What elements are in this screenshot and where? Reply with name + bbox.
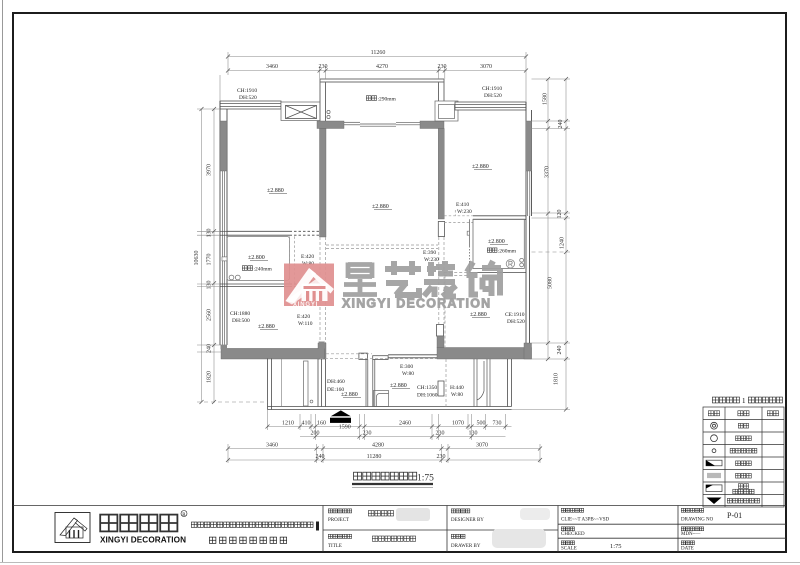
svg-text:DRAWER BY: DRAWER BY [451,544,481,549]
svg-text:W:80: W:80 [402,371,414,377]
svg-text::240mm: :240mm [254,267,273,273]
svg-text:1580: 1580 [543,93,549,105]
svg-text:±2.880: ±2.880 [390,383,407,389]
svg-text:730: 730 [493,421,502,427]
svg-text:W:80: W:80 [451,392,463,398]
svg-text:120: 120 [557,210,563,219]
svg-text:TITLE: TITLE [328,544,342,549]
svg-text:3370: 3370 [545,166,551,178]
svg-text:230: 230 [437,454,446,460]
svg-text:DESIGNER BY: DESIGNER BY [451,518,484,523]
svg-text:2460: 2460 [399,421,411,427]
svg-text:PROJECT: PROJECT [328,518,349,523]
svg-text:E:420: E:420 [297,314,310,320]
svg-text:11260: 11260 [371,50,386,56]
svg-text:DH:520: DH:520 [239,95,257,101]
svg-text:CHECKED: CHECKED [561,532,585,537]
svg-text:1590: 1590 [339,425,351,431]
svg-text:CH:1910: CH:1910 [237,88,257,94]
svg-text:10630: 10630 [194,251,200,266]
svg-text:W:110: W:110 [298,321,313,327]
svg-text:E:390: E:390 [423,250,436,256]
svg-text:230: 230 [363,431,372,437]
svg-text:410: 410 [302,421,311,427]
svg-text:1: 1 [742,397,746,405]
svg-text:1820: 1820 [207,371,213,383]
svg-text:3070: 3070 [476,443,488,449]
svg-text:1810: 1810 [554,373,560,385]
svg-text:1:75: 1:75 [417,474,434,484]
svg-text:1070: 1070 [452,421,464,427]
svg-text:230: 230 [319,64,328,70]
svg-text:±2.880: ±2.880 [267,188,284,194]
svg-text:240: 240 [207,344,213,353]
svg-text:500: 500 [477,421,486,427]
svg-text:±2.800: ±2.800 [488,239,505,245]
svg-text:CLIE~~T A3PB~~VSD: CLIE~~T A3PB~~VSD [561,518,609,523]
svg-text:230: 230 [436,431,445,437]
svg-text:E:420: E:420 [301,254,314,260]
svg-text:3460: 3460 [266,443,278,449]
svg-text:160: 160 [317,421,326,427]
svg-text:H:440: H:440 [450,385,464,391]
svg-text:DATE: DATE [681,547,694,552]
svg-text:DH:1060: DH:1060 [417,393,438,399]
svg-text:3460: 3460 [266,64,278,70]
svg-text:CH:1910: CH:1910 [482,86,502,92]
svg-text:CE:1910: CE:1910 [505,312,525,318]
svg-text:1:75: 1:75 [610,543,622,550]
svg-text:DRAWING NO: DRAWING NO [681,518,714,523]
svg-text:4280: 4280 [372,443,384,449]
svg-text:3970: 3970 [207,164,213,176]
svg-text:DE:160: DE:160 [327,387,344,393]
svg-text:240: 240 [316,454,325,460]
svg-text:±2.800: ±2.800 [248,255,265,261]
svg-text:200: 200 [311,431,320,437]
svg-text:SCALE: SCALE [561,547,577,552]
svg-text:±2.880: ±2.880 [258,324,275,330]
svg-text:230: 230 [438,64,447,70]
svg-text:4270: 4270 [376,64,388,70]
svg-text:CH:1350: CH:1350 [417,385,437,391]
svg-text:130: 130 [207,281,213,290]
svg-text:1240: 1240 [560,237,566,249]
svg-text:XINGYI DECORATION: XINGYI DECORATION [100,536,186,545]
svg-text:DH:500: DH:500 [232,318,250,324]
svg-text:CH:1880: CH:1880 [230,311,250,317]
svg-text:XINGYI: XINGYI [293,302,318,308]
svg-text:1210: 1210 [282,421,294,427]
svg-text:1770: 1770 [207,254,213,266]
svg-text:130: 130 [469,431,478,437]
svg-text:XINGYI DECORATION: XINGYI DECORATION [342,297,491,311]
svg-text:±2.880: ±2.880 [472,164,489,170]
svg-text:±2.880: ±2.880 [372,204,389,210]
svg-text:±2.880: ±2.880 [470,312,487,318]
svg-text:W:230: W:230 [457,209,472,215]
svg-text:130: 130 [207,229,213,238]
svg-text:2560: 2560 [207,309,213,321]
svg-text:240: 240 [557,346,563,355]
svg-text:3070: 3070 [480,64,492,70]
svg-text:DH:520: DH:520 [484,93,502,99]
svg-text:11280: 11280 [367,454,382,460]
svg-text:E:410: E:410 [456,202,469,208]
svg-text:240: 240 [558,120,564,129]
svg-text:DH:460: DH:460 [327,379,345,385]
svg-text::260mm: :260mm [498,249,517,255]
svg-text::290mm: :290mm [378,97,397,103]
svg-text:MDN~—: MDN~— [681,532,701,537]
svg-text:5080: 5080 [548,277,554,289]
svg-text:E:300: E:300 [400,364,413,370]
svg-text:DH:520: DH:520 [507,319,525,325]
svg-text:P-01: P-01 [727,511,742,520]
